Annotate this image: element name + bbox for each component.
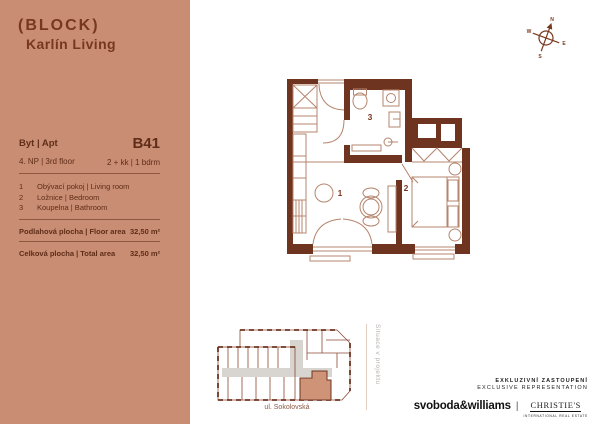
room-number: 2 (19, 193, 37, 204)
brand-separator: | (516, 401, 519, 412)
footer-line-en: EXCLUSIVE REPRESENTATION (414, 385, 588, 391)
christies-logo: CHRISTIE'S INTERNATIONAL REAL ESTATE (523, 395, 588, 418)
compass-n: N (550, 17, 554, 23)
fixtures-and-furniture (293, 80, 462, 261)
apartment-floor: 4. NP | 3rd floor (19, 157, 75, 166)
apartment-header-right: B41 2 + kk | 1 bdrm (107, 138, 160, 167)
brand-logo: (BLOCK) Karlín Living (18, 17, 116, 52)
brochure-page: (BLOCK) Karlín Living Byt | Apt 4. NP | … (0, 0, 600, 424)
total-area-value: 32,50 m² (130, 249, 160, 258)
plan-label-bathroom: 3 (368, 112, 373, 122)
info-panel: (BLOCK) Karlín Living Byt | Apt 4. NP | … (0, 0, 190, 424)
apartment-header-left: Byt | Apt 4. NP | 3rd floor (19, 138, 75, 167)
room-list-item: 2 Ložnice | Bedroom (19, 193, 160, 204)
site-plan-caption: Situace v projektu (369, 324, 381, 412)
room-list: 1 Obývací pokoj | Living room 2 Ložnice … (19, 182, 160, 214)
footer: EXKLUZIVNÍ ZASTOUPENÍ EXCLUSIVE REPRESEN… (414, 378, 588, 418)
footer-line-cz: EXKLUZIVNÍ ZASTOUPENÍ (414, 378, 588, 384)
floor-area-label: Podlahová plocha | Floor area (19, 227, 126, 236)
total-area-label: Celková plocha | Total area (19, 249, 115, 258)
total-area-row: Celková plocha | Total area 32,50 m² (19, 249, 160, 258)
site-plan (212, 320, 362, 415)
plan-label-bedroom: 2 (404, 183, 409, 193)
compass-e: E (562, 41, 566, 47)
street-label: ul. Sokolovská (237, 404, 337, 411)
divider (19, 241, 160, 242)
apartment-header: Byt | Apt 4. NP | 3rd floor B41 2 + kk |… (19, 138, 160, 167)
divider (19, 219, 160, 220)
plan-label-living: 1 (338, 188, 343, 198)
floor-area-row: Podlahová plocha | Floor area 32,50 m² (19, 227, 160, 236)
svoboda-williams-logo: svoboda&williams (414, 400, 511, 412)
apartment-label: Byt | Apt (19, 138, 75, 149)
room-name: Obývací pokoj | Living room (37, 182, 129, 193)
compass-s: S (538, 54, 542, 60)
apartment-code: B41 (107, 138, 160, 150)
room-name: Ložnice | Bedroom (37, 193, 99, 204)
room-number: 1 (19, 182, 37, 193)
room-name: Koupelna | Bathroom (37, 203, 107, 214)
caption-divider (366, 324, 367, 410)
room-list-item: 3 Koupelna | Bathroom (19, 203, 160, 214)
room-list-item: 1 Obývací pokoj | Living room (19, 182, 160, 193)
christies-subtext: INTERNATIONAL REAL ESTATE (523, 414, 588, 418)
floor-plan: 1 2 3 (260, 60, 480, 280)
compass-icon: N E S W (526, 12, 570, 62)
brand-logo-block: (BLOCK) (18, 17, 116, 35)
footer-brand-row: svoboda&williams | CHRISTIE'S INTERNATIO… (414, 395, 588, 418)
christies-wordmark: CHRISTIE'S (530, 400, 581, 412)
room-number: 3 (19, 203, 37, 214)
brand-logo-karlin: Karlín Living (26, 36, 116, 52)
compass-w: W (527, 29, 532, 35)
divider (19, 173, 160, 174)
apartment-layout: 2 + kk | 1 bdrm (107, 158, 160, 167)
floor-area-value: 32,50 m² (130, 227, 160, 236)
